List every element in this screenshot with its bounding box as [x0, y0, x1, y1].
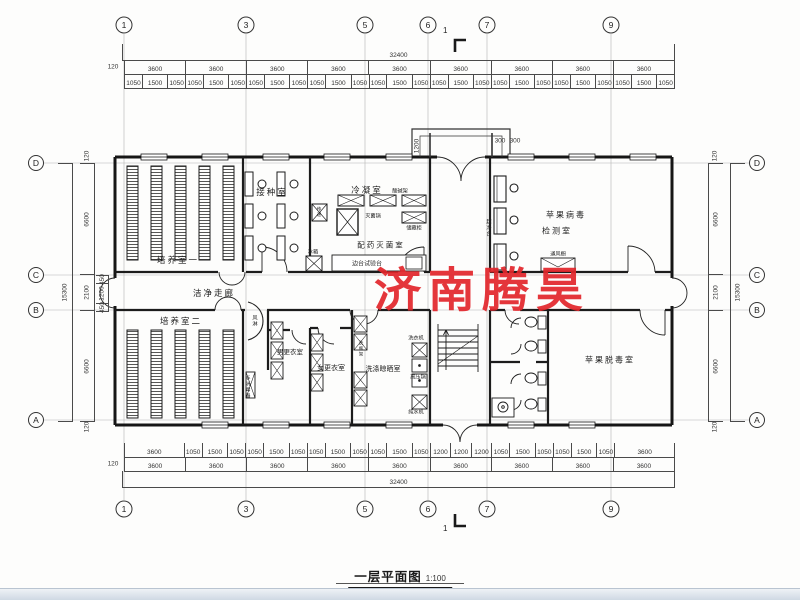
- toilet-fixtures: [492, 316, 546, 417]
- dim-offset-right-top: 120: [712, 151, 719, 162]
- fixture-label-water-purifier: 纯水机: [408, 409, 424, 416]
- svg-text:6: 6: [426, 20, 431, 30]
- grid-bubble-top-6: 6: [420, 17, 436, 33]
- dim-offset-bottom-left: 120: [108, 461, 119, 468]
- dim-col-left-total: 15300: [58, 163, 73, 422]
- dim-col-left-bays: 660021006600: [80, 163, 95, 422]
- grid-bubble-bottom-3: 3: [238, 501, 254, 517]
- grid-bubble-top-1: 1: [116, 17, 132, 33]
- dim-col-left-corridor-sub: 4501200450: [96, 275, 109, 312]
- grid-bubble-left-B: B: [29, 303, 44, 318]
- dim-entrance-depth: 1200: [414, 139, 421, 153]
- grid-bubble-bottom-9: 9: [603, 501, 619, 517]
- dim-offset-left-top: 120: [84, 151, 91, 162]
- fixture-label-storage-cabinet: 储藏柜: [406, 225, 422, 232]
- dim-offset-left-bottom: 120: [84, 422, 91, 433]
- grid-bubble-left-A: A: [29, 413, 44, 428]
- fixture-label-acid-rack: 酸碱架: [392, 188, 408, 195]
- svg-text:5: 5: [363, 504, 368, 514]
- fixture-label-fridge: 冰箱: [308, 249, 318, 256]
- dim-col-right-total: 15300: [730, 163, 745, 422]
- window-edge: [0, 588, 800, 600]
- room-label-culture-room-2: 培养室二: [160, 315, 202, 327]
- grid-bubble-right-B: B: [750, 303, 765, 318]
- svg-text:B: B: [754, 305, 760, 315]
- watermark-text: 济南腾昊: [374, 252, 590, 321]
- svg-text:1: 1: [122, 20, 127, 30]
- svg-text:9: 9: [609, 20, 614, 30]
- grid-bubble-bottom-6: 6: [420, 501, 436, 517]
- section-label-bottom: 1: [443, 524, 447, 533]
- fixture-label-autoclave: 高压锅: [410, 374, 426, 381]
- drawing-scale: 1:100: [426, 574, 446, 583]
- fixture-label-air-shower: 风淋: [252, 315, 259, 327]
- room-label-virus-detect-line1: 苹果病毒: [546, 210, 586, 221]
- grid-bubble-right-A: A: [750, 413, 765, 428]
- staircase: [438, 324, 478, 372]
- title-underline: [336, 583, 464, 584]
- dim-row-bottom-total: 32400: [122, 471, 675, 488]
- svg-text:C: C: [33, 270, 39, 280]
- dim-row-bottom-bays: 360036003600360036003600360036003600: [124, 457, 675, 472]
- fixture-label-hand-sanitizer: 手消毒器: [244, 375, 251, 398]
- room-label-washing-drying: 洗涤晾晒室: [366, 364, 401, 374]
- dim-row-top-bays: 360036003600360036003600360036003600: [124, 60, 675, 75]
- dim-entrance-300a: 300: [495, 138, 506, 145]
- fixture-label-sterilizer-pot: 灭菌锅: [365, 213, 381, 220]
- svg-text:D: D: [33, 158, 39, 168]
- svg-text:9: 9: [609, 504, 614, 514]
- room-label-virus-free: 苹果脱毒室: [585, 355, 635, 366]
- dim-offset-top-left: 120: [108, 64, 119, 71]
- grid-bubble-bottom-5: 5: [357, 501, 373, 517]
- dim-offset-right-bottom: 120: [712, 422, 719, 433]
- fixture-label-clean-bench: 超净台: [486, 219, 493, 238]
- drawing-sheet: 1 3 5 6 7 9 1 3 5 6 7 9 D C B A D C B A: [0, 0, 800, 600]
- svg-text:6: 6: [426, 504, 431, 514]
- grid-bubble-top-9: 9: [603, 17, 619, 33]
- svg-text:A: A: [33, 415, 39, 425]
- svg-text:5: 5: [363, 20, 368, 30]
- grid-bubble-bottom-7: 7: [479, 501, 495, 517]
- drawing-title-text: 一层平面图: [354, 570, 422, 584]
- room-label-virus-detect-line2: 检测室: [542, 226, 572, 237]
- svg-text:C: C: [754, 270, 760, 280]
- svg-text:B: B: [33, 305, 39, 315]
- room-label-inoculation: 接种室: [256, 186, 288, 198]
- room-label-clean-corridor: 洁净走廊: [193, 287, 235, 299]
- section-label-top: 1: [443, 26, 447, 35]
- grid-bubble-right-C: C: [750, 268, 765, 283]
- dim-col-right-bays: 660021006600: [708, 163, 723, 422]
- svg-text:3: 3: [244, 20, 249, 30]
- grid-bubble-right-D: D: [750, 156, 765, 171]
- dim-row-top-windows: 1050150010501050150010501050150010501050…: [124, 74, 675, 89]
- svg-text:7: 7: [485, 20, 490, 30]
- fixture-label-bottle-rack: 洗瓶架: [358, 341, 364, 358]
- grid-bubble-left-C: C: [29, 268, 44, 283]
- room-label-culture-room-1: 培养室一: [157, 254, 199, 266]
- fixture-label-pass-window: 传递: [316, 207, 322, 218]
- dim-entrance-300b: 300: [510, 138, 521, 145]
- svg-text:3: 3: [244, 504, 249, 514]
- svg-text:A: A: [754, 415, 760, 425]
- grid-bubble-left-D: D: [29, 156, 44, 171]
- room-label-womens-changing: 女更衣室: [317, 363, 345, 373]
- svg-text:1: 1: [122, 504, 127, 514]
- grid-bubble-bottom-1: 1: [116, 501, 132, 517]
- drawing-title: 一层平面图1:100: [348, 566, 452, 589]
- grid-bubble-top-3: 3: [238, 17, 254, 33]
- svg-text:7: 7: [485, 504, 490, 514]
- dim-row-top-total: 32400: [122, 44, 675, 61]
- room-label-mens-changing: 男更衣室: [277, 346, 303, 356]
- svg-text:D: D: [754, 158, 760, 168]
- grid-bubble-top-5: 5: [357, 17, 373, 33]
- room-label-prep-sterilize: 配药灭菌室: [357, 240, 405, 251]
- fixture-label-washing-machine: 洗衣机: [408, 335, 424, 342]
- dim-row-bottom-windows: 3600105015001050105015001050105015001050…: [124, 443, 675, 458]
- room-label-condensation: 冷凝室: [351, 184, 383, 196]
- grid-bubble-top-7: 7: [479, 17, 495, 33]
